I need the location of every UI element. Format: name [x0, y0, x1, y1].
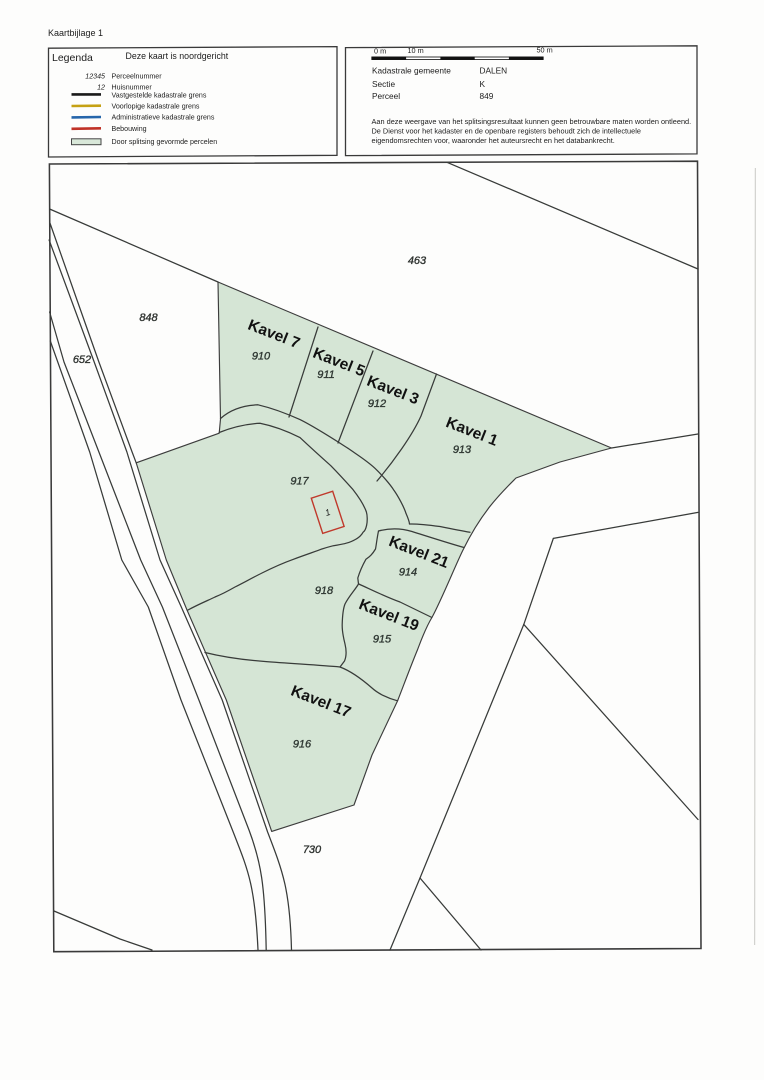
svg-text:12: 12 — [97, 83, 105, 91]
svg-text:463: 463 — [408, 255, 427, 267]
svg-text:Deze kaart is noordgericht: Deze kaart is noordgericht — [126, 51, 229, 61]
svg-text:12345: 12345 — [85, 73, 105, 81]
svg-text:910: 910 — [252, 351, 271, 363]
svg-text:917: 917 — [290, 476, 309, 488]
svg-text:Perceel: Perceel — [372, 91, 400, 101]
svg-text:912: 912 — [368, 398, 386, 410]
svg-text:730: 730 — [303, 844, 322, 856]
svg-text:De Dienst voor het kadaster en: De Dienst voor het kadaster en de openba… — [372, 126, 641, 135]
svg-text:Kadastrale gemeente: Kadastrale gemeente — [372, 66, 451, 76]
svg-text:915: 915 — [373, 634, 392, 646]
svg-text:0 m: 0 m — [374, 47, 386, 56]
svg-text:916: 916 — [293, 739, 312, 751]
svg-text:918: 918 — [315, 585, 334, 597]
svg-text:914: 914 — [399, 567, 417, 579]
svg-text:K: K — [480, 79, 486, 89]
svg-text:Sectie: Sectie — [372, 79, 395, 89]
svg-text:10 m: 10 m — [408, 46, 424, 55]
svg-text:913: 913 — [453, 444, 472, 456]
svg-text:Voorlopige kadastrale grens: Voorlopige kadastrale grens — [112, 102, 200, 110]
svg-text:849: 849 — [480, 91, 494, 101]
svg-text:Bebouwing: Bebouwing — [112, 125, 147, 133]
svg-text:Perceelnummer: Perceelnummer — [112, 73, 163, 81]
svg-text:eigendomsrechten voor, waarond: eigendomsrechten voor, waaronder het aut… — [372, 136, 615, 145]
svg-text:Door splitsing gevormde percel: Door splitsing gevormde percelen — [112, 138, 218, 146]
svg-text:911: 911 — [317, 369, 335, 381]
svg-text:Administratieve kadastrale gre: Administratieve kadastrale grens — [112, 114, 215, 122]
svg-text:Aan deze weergave van het spli: Aan deze weergave van het splitsingsresu… — [372, 117, 692, 126]
svg-text:50 m: 50 m — [537, 46, 553, 55]
svg-text:652: 652 — [73, 354, 91, 366]
svg-text:Vastgestelde kadastrale grens: Vastgestelde kadastrale grens — [112, 91, 207, 99]
svg-text:Huisnummer: Huisnummer — [112, 83, 153, 91]
svg-text:848: 848 — [139, 312, 158, 324]
svg-text:Legenda: Legenda — [52, 52, 93, 64]
svg-text:DALEN: DALEN — [480, 66, 508, 76]
svg-text:Kaartbijlage 1: Kaartbijlage 1 — [48, 28, 103, 38]
